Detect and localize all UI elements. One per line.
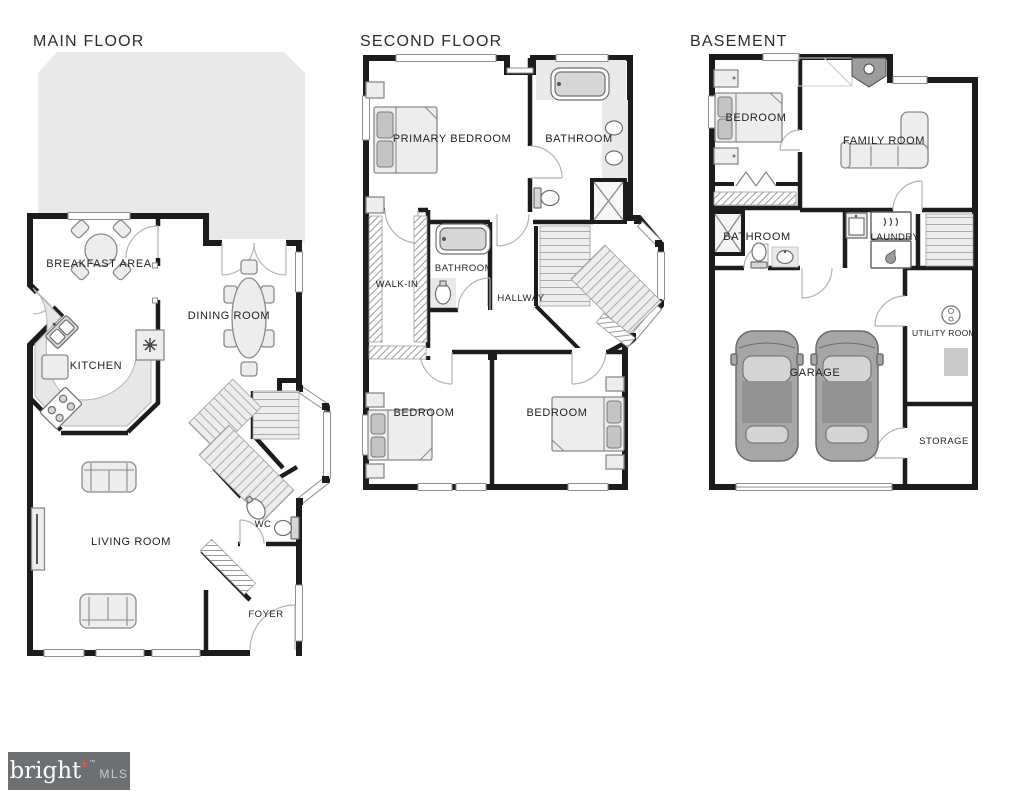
bathtub [436, 224, 490, 254]
room-label-living-room: LIVING ROOM [91, 536, 171, 548]
garage-entry-gap [800, 264, 834, 272]
stair-wall-stub [277, 378, 282, 391]
room-label-kitchen: KITCHEN [70, 360, 122, 372]
front-door-gap [250, 649, 296, 657]
logo-star-icon: ✦ [79, 757, 89, 771]
washer [871, 241, 911, 268]
closet-rod [369, 346, 426, 359]
cased-opening [154, 266, 162, 300]
bedroom-door-gap [572, 348, 606, 356]
window [68, 213, 130, 220]
basement-plan: BASEMENT [690, 33, 976, 491]
tv-console [32, 508, 45, 570]
window [568, 484, 608, 491]
bay-window [658, 252, 665, 300]
floor-title-basement: BASEMENT [690, 33, 788, 50]
window [96, 650, 144, 657]
furnace [944, 348, 968, 376]
nightstand [714, 148, 738, 164]
car-mirror [797, 354, 803, 365]
sink [606, 151, 623, 165]
utility-door-gap [901, 296, 909, 326]
window [763, 54, 799, 61]
room-label-breakfast-area: BREAKFAST AREA [46, 258, 151, 270]
refrigerator [136, 330, 164, 360]
floor-plan-canvas: MAIN FLOOR [0, 0, 1024, 791]
logo-mls-text: MLS [99, 767, 128, 781]
ensuite-door-gap [526, 146, 534, 178]
wall-jog [488, 352, 497, 360]
bay-corner [634, 217, 641, 224]
window [396, 55, 496, 62]
closet-rod [714, 192, 796, 205]
walkin-door-gap [385, 206, 418, 214]
floor-title-second: SECOND FLOOR [360, 33, 502, 50]
room-label-primary-bedroom: PRIMARY BEDROOM [393, 133, 512, 145]
nightstand [606, 377, 624, 391]
car-mirror [811, 354, 817, 365]
nightstand [606, 455, 624, 469]
window [456, 484, 486, 491]
dishwasher [42, 355, 68, 379]
water-heater [942, 306, 960, 324]
room-label-family-room: FAMILY ROOM [843, 135, 925, 147]
toilet [751, 243, 767, 268]
nightstand [366, 82, 384, 98]
sofa [80, 594, 136, 628]
bathtub [551, 68, 609, 100]
car-mirror [877, 354, 883, 365]
room-label-bedroom-left: BEDROOM [393, 407, 454, 419]
nightstand [366, 464, 384, 478]
sofa [82, 462, 136, 492]
storage-door-gap [901, 428, 909, 458]
room-label-dining-room: DINING ROOM [188, 310, 270, 322]
room-label-hallway: HALLWAY [497, 293, 544, 304]
car [731, 331, 803, 461]
sink [772, 247, 798, 267]
bay-window [324, 412, 331, 478]
window [556, 55, 608, 62]
nightstand [366, 393, 384, 407]
nightstand [366, 197, 384, 213]
window [296, 585, 303, 641]
window [893, 77, 927, 84]
window [44, 650, 84, 657]
bay-corner [655, 240, 662, 247]
wc-door-gap [240, 540, 266, 548]
bay-corner [322, 476, 329, 483]
main-floor-plan: MAIN FLOOR [30, 33, 331, 657]
room-label-bedroom: BEDROOM [725, 112, 786, 124]
car [811, 331, 883, 461]
bedroom-door-gap [796, 130, 804, 152]
room-label-walk-in: WALK-IN [376, 279, 419, 290]
floor-title-main: MAIN FLOOR [33, 33, 145, 50]
room-label-bathroom: BATHROOM [723, 231, 791, 243]
window [152, 650, 200, 657]
car-mirror [731, 354, 737, 365]
room-label-foyer: FOYER [248, 609, 283, 620]
floor-plan-page: MAIN FLOOR [0, 0, 1024, 791]
door-jamb [153, 263, 158, 268]
window [418, 484, 452, 491]
window [507, 68, 533, 73]
logo-trademark: ™ [89, 760, 95, 766]
brightmls-logo: bright✦™MLS [8, 752, 130, 790]
bay-corner [322, 403, 329, 410]
room-label-bathroom-ensuite: BATHROOM [545, 133, 613, 145]
logo-brand-text: bright [9, 760, 81, 783]
room-label-utility-room: UTILITY ROOM [912, 328, 976, 338]
window [296, 252, 303, 292]
second-floor-plan: SECOND FLOOR [360, 33, 665, 491]
nightstand [714, 70, 738, 87]
linen-closet [592, 180, 625, 222]
room-label-bathroom-hall: BATHROOM [435, 263, 493, 274]
bed [552, 397, 624, 451]
room-label-storage: STORAGE [919, 436, 969, 447]
window [363, 96, 370, 140]
room-label-garage: GARAGE [790, 367, 841, 379]
door-jamb [153, 298, 158, 303]
room-label-bedroom-right: BEDROOM [526, 407, 587, 419]
stairs [926, 214, 973, 266]
bay-corner [296, 498, 303, 505]
room-label-wc: WC [255, 519, 272, 530]
utility-sink [846, 213, 867, 238]
room-label-laundry: LAUNDRY [871, 232, 920, 243]
bath-door-gap [458, 306, 488, 314]
